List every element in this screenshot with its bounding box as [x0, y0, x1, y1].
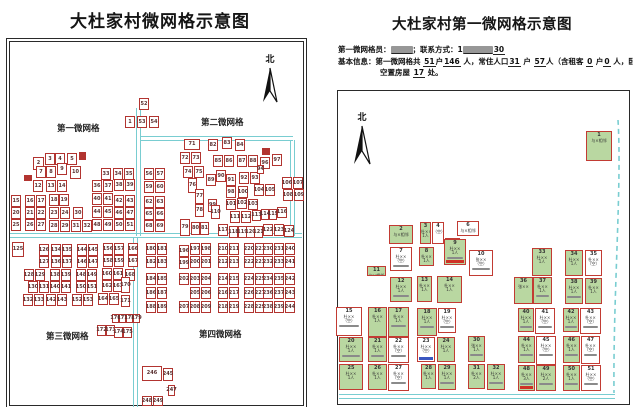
solid-marker	[79, 152, 86, 160]
phone-redacted	[393, 295, 409, 298]
plot-box: 233	[274, 256, 284, 268]
plot-box: 41	[103, 193, 113, 205]
house-box: 30张××1人	[468, 336, 485, 362]
plot-box: 125	[12, 242, 24, 257]
plot-box: 130	[28, 281, 38, 293]
plot-box: 247	[168, 385, 175, 396]
plot-box: 142	[46, 294, 56, 306]
plot-box: 146	[77, 256, 87, 268]
house-label: （空）	[389, 376, 408, 381]
north-arrow-icon	[258, 65, 282, 105]
plot-box: 39	[125, 179, 135, 191]
info-text: 基本信息：第一微网格共	[338, 57, 423, 66]
house-label: 1人	[564, 377, 579, 382]
plot-box: 123	[274, 224, 284, 236]
plot-box: 127	[39, 256, 49, 268]
plot-box: 20	[11, 207, 21, 219]
house-box: 18杜××1人	[417, 308, 437, 336]
house-label: （空）	[581, 320, 600, 325]
phone-redacted	[539, 383, 554, 386]
plot-box: 50	[114, 219, 124, 231]
plot-box: 186	[146, 287, 156, 299]
house-label: 张××	[515, 285, 532, 290]
plot-box: 188	[146, 301, 156, 313]
house-label: 1人	[340, 376, 362, 381]
plot-box: 230	[263, 243, 273, 255]
phone-redacted	[536, 295, 550, 298]
plot-box: 45	[103, 206, 113, 218]
info-value: 31	[508, 57, 520, 67]
plot-box: 144	[77, 244, 87, 256]
plot-box: 139	[61, 269, 71, 281]
right-panel-title: 大杜家村第一微网格示意图	[368, 13, 596, 34]
house-box: 17杜××1人	[388, 307, 409, 337]
phone-redacted	[391, 382, 407, 385]
info-value: 57	[534, 57, 546, 67]
phone-redacted	[520, 326, 531, 329]
info-value: 146	[443, 57, 461, 67]
house-box: 21杜××1人	[368, 337, 387, 362]
house-label: 1人	[488, 376, 504, 381]
house-box: 49杜××2人	[536, 365, 556, 391]
plot-box: 87	[237, 155, 247, 167]
plot-box: 46	[114, 207, 124, 219]
plot-box: 66	[155, 208, 165, 220]
plot-box: 248	[142, 396, 152, 406]
info-value: 51	[423, 57, 435, 67]
house-label: 1人	[420, 259, 433, 264]
info-line: 第一微网格员：；联系方式：130	[338, 44, 630, 56]
house-box: 35杜××（空）	[585, 250, 602, 276]
house-label: 3人	[519, 377, 534, 382]
info-text: 户	[521, 57, 534, 66]
plot-box: 48	[92, 219, 102, 231]
house-label: 1人	[421, 234, 430, 239]
plot-box: 98	[226, 186, 236, 198]
plot-box: 148	[76, 269, 86, 281]
house-label: 1人	[418, 320, 436, 325]
plot-box: 24	[60, 207, 70, 219]
plot-box: 52	[139, 98, 149, 110]
house-label: （空）	[337, 319, 361, 324]
info-text: 人（含租客	[546, 57, 586, 66]
phone-redacted	[371, 355, 385, 358]
plot-box: 232	[263, 256, 273, 268]
plot-box: 182	[146, 256, 156, 268]
village-grid-schematic: 大杜家村微网格示意图 北 第一微网格第二微网格第三微网格第四微网格 521535…	[0, 0, 633, 407]
plot-box: 7	[36, 166, 46, 178]
plot-box: 89	[206, 174, 216, 186]
plot-box: 68	[144, 220, 154, 232]
plot-box: 200	[190, 256, 200, 268]
plot-box: 152	[72, 294, 82, 306]
house-box: 37杜××1人	[533, 277, 552, 304]
house-label: 1人	[391, 289, 411, 294]
plot-box: 143	[57, 294, 67, 306]
plot-box: 17	[36, 195, 46, 207]
plot-box: 16	[25, 195, 35, 207]
house-box: 19杜××（空）	[438, 308, 456, 333]
plot-box: 101	[226, 199, 236, 210]
house-box: 20杜××1人	[339, 337, 363, 362]
plot-box: 196	[179, 245, 189, 257]
plot-box: 116	[277, 207, 287, 218]
house-box: 26杜××1人	[368, 364, 387, 390]
plot-box: 28	[49, 220, 59, 232]
house-box: 39杜××1人	[585, 278, 602, 304]
plot-box: 128	[24, 269, 34, 281]
house-box: 42杜××1人	[563, 308, 579, 332]
info-text: 户	[593, 57, 603, 66]
house-label: （空）	[433, 230, 443, 235]
plot-box: 170	[121, 277, 130, 293]
plot-box: 187	[157, 287, 167, 299]
grid-label: 第四微网格	[199, 328, 242, 340]
solid-marker	[24, 175, 32, 181]
house-label: 1人	[418, 288, 431, 293]
plot-box: 183	[157, 256, 167, 268]
house-label: （空）	[536, 320, 554, 325]
phone-redacted	[584, 354, 598, 357]
plot-box: 77	[195, 189, 204, 204]
house-box: 44杜××1人	[518, 336, 535, 363]
plot-box: 44	[92, 206, 102, 218]
house-box: 43杜××（空）	[580, 308, 601, 334]
plot-box: 138	[50, 269, 60, 281]
house-label: 1人	[369, 376, 386, 381]
house-box: 25杜××1人	[339, 364, 363, 390]
plot-box: 201	[201, 256, 211, 268]
plot-box: 153	[83, 294, 93, 306]
plot-box: 219	[229, 301, 239, 313]
plot-box: 80	[191, 222, 200, 235]
plot-box: 60	[155, 181, 165, 193]
plot-box: 40	[92, 193, 102, 205]
plot-box: 51	[125, 219, 135, 231]
phone-redacted	[583, 326, 599, 329]
plot-box: 240	[285, 243, 295, 255]
plot-box: 175	[123, 327, 132, 338]
phone-redacted	[339, 325, 359, 328]
plot-box: 59	[144, 181, 154, 193]
plot-box: 121	[254, 226, 263, 238]
plot-box: 202	[179, 273, 189, 285]
plot-box: 106	[282, 177, 292, 189]
plot-box: 197	[190, 243, 200, 255]
plot-box: 237	[274, 287, 284, 299]
house-label: 与×相邻	[390, 233, 412, 238]
phone-redacted	[539, 354, 554, 357]
plot-box: 147	[88, 256, 98, 268]
house-box: 1与×相邻	[586, 131, 612, 161]
info-text: ；联系方式：	[413, 45, 458, 54]
plot-box: 244	[285, 301, 295, 313]
house-box: 12杜××1人	[390, 277, 412, 302]
plot-box: 159	[114, 255, 124, 267]
plot-box: 215	[229, 273, 239, 285]
plot-box: 214	[218, 273, 228, 285]
plot-box: 72	[180, 152, 190, 164]
house-box: 6与×相邻	[457, 221, 479, 236]
plot-box: 206	[201, 287, 211, 299]
plot-box: 151	[87, 281, 97, 293]
plot-box: 238	[263, 301, 273, 313]
plot-box: 199	[179, 257, 189, 269]
plot-box: 107	[293, 177, 303, 189]
plot-box: 117	[218, 224, 228, 236]
left-compass: 北	[258, 52, 282, 109]
house-label: 2人	[469, 376, 484, 381]
plot-box: 220	[244, 243, 254, 255]
house-label: 1人	[438, 349, 454, 354]
info-text: 第一微网格员：	[338, 45, 391, 54]
plot-box: 30	[73, 207, 83, 219]
house-label: 1人	[369, 349, 386, 354]
house-label: 1人	[445, 251, 465, 256]
house-box: 15杜××（空）	[336, 307, 362, 336]
house-box: 27杜××（空）	[388, 364, 409, 391]
plot-box: 23	[49, 207, 59, 219]
plot-box: 131	[39, 281, 49, 293]
house-label: 与×相邻	[368, 274, 385, 277]
house-label: （空）	[391, 259, 411, 264]
plot-box: 38	[114, 179, 124, 191]
plot-box: 236	[263, 287, 273, 299]
plot-box: 90	[216, 170, 226, 182]
house-label: 1人	[340, 349, 362, 354]
north-arrow-icon	[350, 123, 374, 167]
plot-box: 83	[222, 137, 232, 149]
plot-box: 198	[201, 243, 211, 255]
house-box: 22杜××（空）	[388, 337, 409, 363]
house-box: 47杜××（空）	[581, 336, 600, 364]
plot-box: 71	[184, 139, 200, 150]
plot-box: 145	[88, 244, 98, 256]
house-box: 31杜××2人	[468, 364, 485, 389]
plot-box: 3	[45, 153, 55, 165]
plot-box: 82	[208, 139, 218, 151]
phone-redacted	[447, 257, 463, 260]
grid-info-block: 第一微网格员：；联系方式：130基本信息：第一微网格共 51户146 人，常住人…	[338, 44, 630, 79]
solid-marker	[262, 148, 270, 155]
plot-box: 156	[103, 243, 113, 255]
plot-box: 85	[213, 155, 223, 167]
house-box: 40杜××1人	[518, 308, 534, 332]
house-box: 9杜××1人	[444, 239, 466, 265]
house-label: 1人	[519, 320, 533, 325]
plot-box: 8	[46, 166, 56, 178]
plot-box: 43	[125, 195, 135, 207]
house-label: 1人	[586, 290, 601, 295]
plot-box: 210	[218, 243, 228, 255]
house-box: 48杜××3人	[518, 365, 535, 391]
phone-redacted	[391, 355, 407, 358]
north-label: 北	[350, 110, 374, 123]
plot-box: 184	[146, 273, 156, 285]
house-label: 1人	[564, 348, 579, 353]
house-box: 4（空）	[432, 222, 444, 244]
grid-label: 第一微网格	[57, 122, 100, 134]
plot-box: 166	[128, 243, 138, 255]
plot-box: 231	[274, 243, 284, 255]
north-label: 北	[258, 52, 282, 65]
house-label: （空）	[582, 348, 599, 353]
plot-box: 124	[284, 225, 294, 237]
phone-redacted	[584, 383, 599, 386]
plot-box: 226	[244, 287, 254, 299]
house-box: 7杜××（空）	[390, 247, 412, 271]
house-label: 2人	[537, 377, 555, 382]
plot-box: 63	[155, 196, 165, 208]
plot-box: 222	[244, 256, 254, 268]
plot-box: 213	[229, 256, 239, 268]
plot-box: 228	[244, 301, 254, 313]
info-value: 17	[413, 68, 425, 78]
house-box: 34杜××1人	[565, 250, 583, 276]
plot-box: 94	[257, 165, 264, 174]
plot-box: 122	[263, 224, 273, 236]
plot-box: 129	[35, 269, 45, 281]
plot-box: 69	[155, 220, 165, 232]
plot-box: 75	[194, 166, 204, 178]
house-box: 32杜××1人	[487, 364, 505, 390]
plot-box: 47	[125, 207, 135, 219]
plot-box: 49	[103, 219, 113, 231]
plot-box: 42	[114, 195, 124, 207]
plot-box: 21	[25, 207, 35, 219]
plot-box: 97	[272, 154, 282, 166]
plot-box: 180	[146, 243, 156, 255]
highlight-band	[520, 386, 533, 389]
plot-box: 100	[238, 186, 248, 198]
plot-box: 209	[201, 301, 211, 313]
plot-box: 31	[71, 220, 81, 232]
plot-box: 109	[294, 189, 304, 201]
info-value: 30	[493, 45, 505, 55]
grid-label: 第三微网格	[46, 330, 89, 342]
plot-box: 62	[144, 196, 154, 208]
plot-box: 53	[137, 116, 147, 128]
grid-label: 第二微网格	[201, 116, 244, 128]
plot-box: 181	[157, 243, 167, 255]
house-box: 13杜××1人	[417, 276, 432, 302]
plot-box: 216	[218, 287, 228, 299]
house-label: （空）	[537, 348, 555, 353]
info-text: 处。	[425, 68, 443, 77]
plot-box: 217	[229, 287, 239, 299]
plot-box: 57	[155, 168, 165, 180]
info-value: 0	[603, 57, 610, 67]
plot-box: 10	[70, 166, 81, 179]
phone-redacted	[470, 354, 482, 357]
plot-box: 132	[23, 294, 33, 306]
house-label: 1人	[564, 320, 578, 325]
phone-redacted	[520, 383, 532, 386]
plot-box: 108	[283, 189, 293, 201]
phone-redacted	[567, 296, 580, 299]
plot-box: 12	[33, 180, 43, 192]
plot-box: 157	[114, 243, 124, 255]
house-label: 1人	[566, 290, 582, 295]
plot-box: 26	[25, 219, 35, 231]
house-box: 16杜××1人	[368, 307, 387, 337]
house-box: 29杜××1人	[438, 364, 456, 390]
phone-redacted	[520, 354, 532, 357]
plot-box: 179	[133, 314, 140, 323]
plot-box: 73	[191, 152, 201, 164]
house-box: 51杜××（空）	[581, 365, 601, 391]
info-text: 1	[458, 45, 463, 54]
house-label: （空）	[582, 377, 600, 382]
redacted-text	[463, 46, 493, 54]
house-box: 28杜××1人	[421, 364, 436, 389]
plot-box: 204	[201, 273, 211, 285]
plot-box: 14	[57, 180, 67, 192]
house-box: 3杜××1人	[420, 222, 431, 244]
plot-box: 134	[51, 244, 61, 256]
plot-box: 1	[125, 116, 135, 128]
plot-box: 86	[224, 155, 234, 167]
plot-box: 218	[218, 301, 228, 313]
phone-redacted	[393, 265, 409, 268]
house-box: 8杜××1人	[419, 247, 434, 266]
plot-box: 150	[76, 281, 86, 293]
plot-box: 207	[179, 301, 189, 313]
info-line: 空置房屋 17 处。	[338, 67, 630, 79]
plot-box: 37	[103, 180, 113, 192]
phone-redacted	[565, 383, 577, 386]
plot-box: 211	[229, 243, 239, 255]
house-label: 1人	[438, 288, 461, 293]
phone-redacted	[440, 382, 453, 385]
plot-box: 65	[144, 208, 154, 220]
plot-box: 105	[265, 184, 275, 196]
plot-box: 5	[67, 153, 77, 165]
plot-box: 33	[101, 168, 111, 180]
plot-box: 208	[190, 301, 200, 313]
plot-box: 54	[149, 116, 159, 128]
house-label: 1人	[519, 348, 534, 353]
house-label: 与×相邻	[587, 139, 611, 144]
plot-box: 149	[87, 269, 97, 281]
plot-box: 15	[11, 195, 21, 207]
plot-box: 136	[51, 256, 61, 268]
house-label: 1人	[389, 319, 408, 324]
plot-box: 171	[121, 295, 130, 307]
house-box: 36张××	[514, 277, 533, 304]
right-compass: 北	[350, 110, 374, 171]
plot-box: 102	[237, 198, 247, 209]
plot-box: 9	[57, 163, 67, 175]
info-text: 人，卧床不起	[611, 57, 633, 66]
plot-box: 158	[103, 255, 113, 267]
plot-box: 141	[61, 281, 71, 293]
phone-redacted	[489, 382, 502, 385]
plot-box: 162	[102, 280, 112, 292]
house-box: 38杜××1人	[565, 278, 583, 304]
phone-redacted	[538, 326, 553, 329]
info-text: 户	[436, 57, 444, 66]
plot-box: 103	[248, 199, 258, 210]
highlight-band	[419, 357, 433, 360]
road	[339, 394, 615, 399]
plot-box: 18	[49, 194, 59, 206]
info-text: 人，常住人口	[461, 57, 509, 66]
plot-box: 74	[183, 166, 193, 178]
plot-box: 25	[11, 219, 21, 231]
plot-box: 81	[200, 222, 209, 235]
plot-box: 239	[274, 301, 284, 313]
